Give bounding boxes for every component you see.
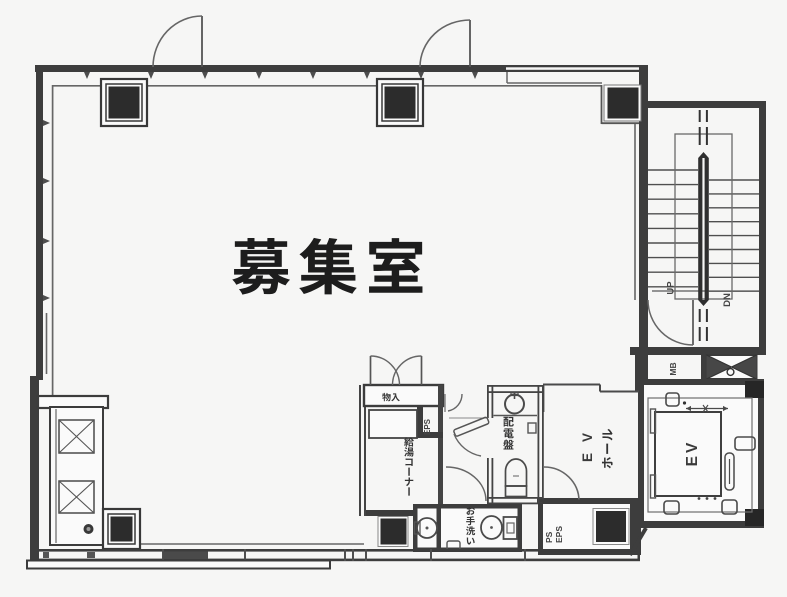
svg-text:MB: MB (668, 362, 678, 375)
svg-text:PS: PS (544, 531, 554, 543)
svg-text:EV: EV (580, 422, 595, 462)
svg-text:DN: DN (722, 293, 733, 307)
svg-text:UP: UP (666, 281, 677, 295)
svg-text:EPS: EPS (423, 418, 432, 435)
svg-text:EV: EV (684, 440, 701, 467)
svg-text:EPS: EPS (554, 526, 564, 543)
